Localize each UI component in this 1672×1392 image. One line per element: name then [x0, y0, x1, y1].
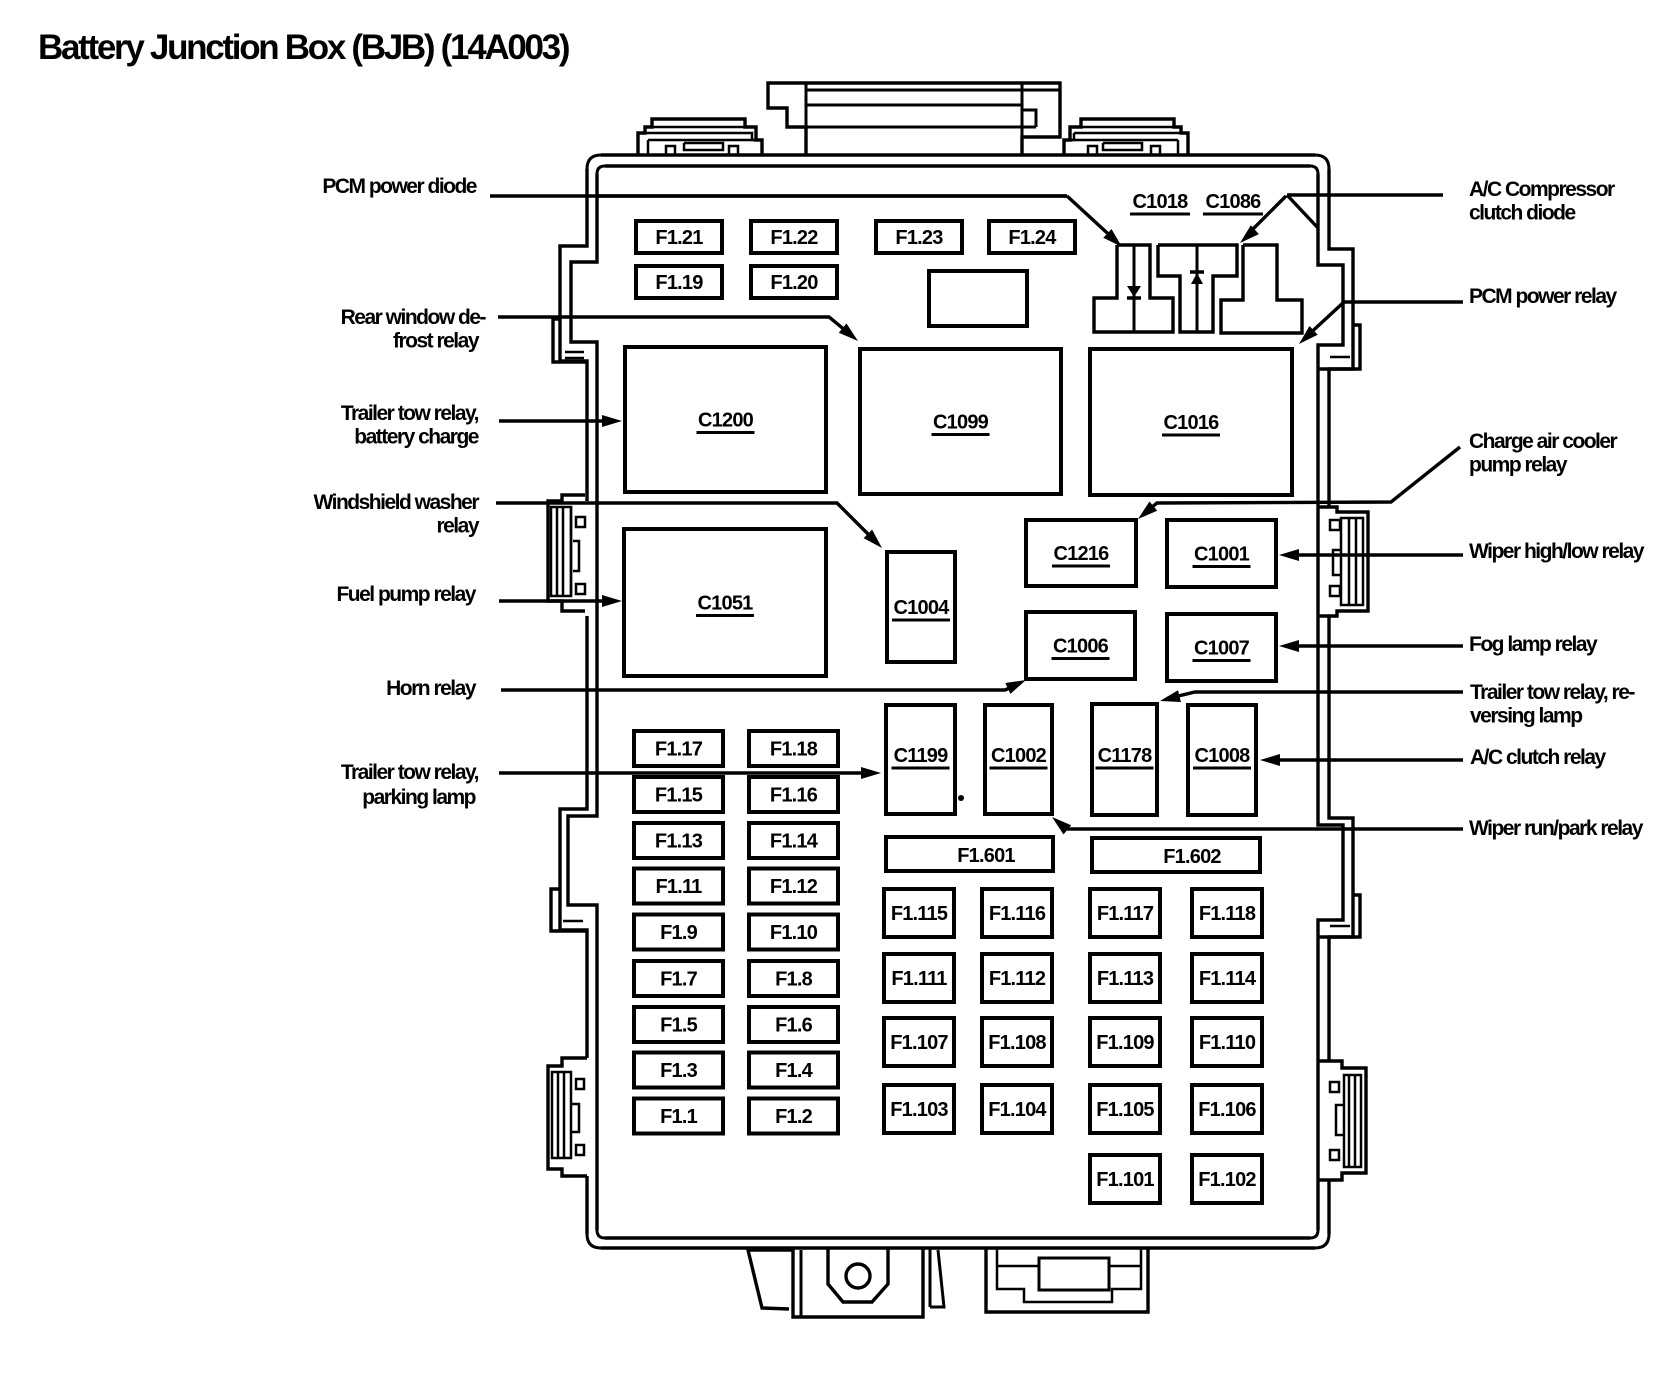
svg-text:F1.15: F1.15 [655, 785, 703, 807]
svg-text:C1200: C1200 [698, 410, 754, 432]
svg-text:F1.20: F1.20 [770, 272, 818, 294]
svg-text:versing lamp: versing lamp [1470, 705, 1582, 728]
svg-text:C1018: C1018 [1133, 191, 1189, 213]
svg-text:F1.5: F1.5 [660, 1015, 697, 1037]
svg-text:F1.107: F1.107 [890, 1032, 948, 1054]
svg-text:relay: relay [436, 515, 479, 538]
svg-text:F1.8: F1.8 [775, 969, 812, 991]
svg-text:F1.10: F1.10 [770, 922, 818, 944]
svg-text:F1.1: F1.1 [660, 1106, 697, 1128]
svg-text:F1.19: F1.19 [655, 272, 703, 294]
svg-text:F1.602: F1.602 [1163, 846, 1221, 868]
svg-text:F1.24: F1.24 [1008, 227, 1057, 249]
svg-text:C1178: C1178 [1098, 745, 1153, 767]
svg-text:battery charge: battery charge [354, 426, 479, 449]
svg-text:F1.108: F1.108 [988, 1032, 1046, 1054]
svg-text:F1.17: F1.17 [655, 739, 703, 761]
svg-text:F1.104: F1.104 [988, 1099, 1047, 1121]
svg-text:F1.112: F1.112 [989, 968, 1046, 990]
svg-text:F1.114: F1.114 [1199, 968, 1257, 990]
svg-text:A/C clutch relay: A/C clutch relay [1470, 746, 1607, 769]
svg-text:Fuel pump relay: Fuel pump relay [336, 583, 476, 606]
svg-text:F1.21: F1.21 [655, 227, 703, 249]
svg-text:F1.115: F1.115 [891, 903, 948, 925]
svg-text:C1006: C1006 [1053, 636, 1109, 658]
svg-text:F1.12: F1.12 [770, 876, 818, 898]
svg-text:F1.2: F1.2 [775, 1106, 812, 1128]
svg-text:Horn relay: Horn relay [386, 677, 477, 700]
svg-text:C1086: C1086 [1206, 191, 1262, 213]
svg-text:Battery Junction Box (BJB) (14: Battery Junction Box (BJB) (14A003) [38, 28, 569, 67]
svg-text:Wiper run/park relay: Wiper run/park relay [1469, 817, 1644, 840]
svg-text:F1.109: F1.109 [1096, 1032, 1154, 1054]
svg-text:F1.18: F1.18 [770, 739, 818, 761]
svg-text:PCM power relay: PCM power relay [1469, 285, 1618, 308]
svg-text:Trailer tow relay,: Trailer tow relay, [341, 402, 479, 425]
svg-text:C1016: C1016 [1164, 412, 1220, 434]
svg-text:C1051: C1051 [698, 593, 754, 615]
svg-text:F1.105: F1.105 [1096, 1099, 1154, 1121]
svg-text:F1.111: F1.111 [891, 968, 947, 990]
svg-text:Fog lamp relay: Fog lamp relay [1469, 633, 1598, 656]
svg-text:F1.103: F1.103 [890, 1099, 948, 1121]
svg-text:F1.11: F1.11 [655, 876, 702, 898]
svg-text:C1008: C1008 [1195, 745, 1251, 767]
svg-text:pump relay: pump relay [1469, 454, 1568, 477]
svg-text:F1.7: F1.7 [660, 969, 697, 991]
svg-text:F1.22: F1.22 [770, 227, 818, 249]
svg-text:F1.6: F1.6 [775, 1015, 812, 1037]
svg-text:C1001: C1001 [1194, 544, 1250, 566]
svg-text:F1.16: F1.16 [770, 785, 818, 807]
svg-text:F1.601: F1.601 [957, 845, 1015, 867]
svg-text:F1.13: F1.13 [655, 831, 703, 853]
svg-text:F1.118: F1.118 [1199, 903, 1256, 925]
svg-text:F1.102: F1.102 [1198, 1169, 1256, 1191]
svg-text:F1.110: F1.110 [1199, 1032, 1256, 1054]
svg-text:F1.106: F1.106 [1198, 1099, 1256, 1121]
svg-text:F1.14: F1.14 [770, 831, 819, 853]
svg-text:F1.101: F1.101 [1096, 1169, 1154, 1191]
svg-text:C1216: C1216 [1054, 543, 1110, 565]
svg-text:Wiper high/low relay: Wiper high/low relay [1469, 540, 1645, 563]
svg-text:F1.117: F1.117 [1097, 903, 1154, 925]
svg-text:A/C Compressor: A/C Compressor [1469, 178, 1615, 201]
svg-text:F1.4: F1.4 [775, 1060, 813, 1082]
svg-text:F1.116: F1.116 [989, 903, 1046, 925]
svg-text:Windshield washer: Windshield washer [313, 491, 479, 514]
svg-text:C1002: C1002 [991, 745, 1047, 767]
svg-text:F1.113: F1.113 [1097, 968, 1154, 990]
svg-text:F1.9: F1.9 [660, 922, 697, 944]
svg-text:F1.3: F1.3 [660, 1060, 697, 1082]
svg-text:C1099: C1099 [933, 412, 989, 434]
svg-text:F1.23: F1.23 [895, 227, 943, 249]
svg-text:clutch diode: clutch diode [1469, 202, 1575, 225]
svg-text:C1004: C1004 [894, 597, 951, 619]
svg-text:C1007: C1007 [1194, 638, 1250, 660]
svg-text:frost relay: frost relay [393, 330, 480, 353]
svg-text:PCM power diode: PCM power diode [322, 175, 476, 198]
svg-text:Rear window de-: Rear window de- [341, 306, 487, 329]
svg-text:Trailer tow relay,: Trailer tow relay, [341, 761, 479, 784]
svg-text:parking lamp: parking lamp [362, 786, 475, 809]
svg-text:C1199: C1199 [894, 745, 949, 767]
svg-text:Trailer tow relay, re-: Trailer tow relay, re- [1470, 681, 1635, 704]
svg-text:Charge air cooler: Charge air cooler [1469, 430, 1618, 453]
